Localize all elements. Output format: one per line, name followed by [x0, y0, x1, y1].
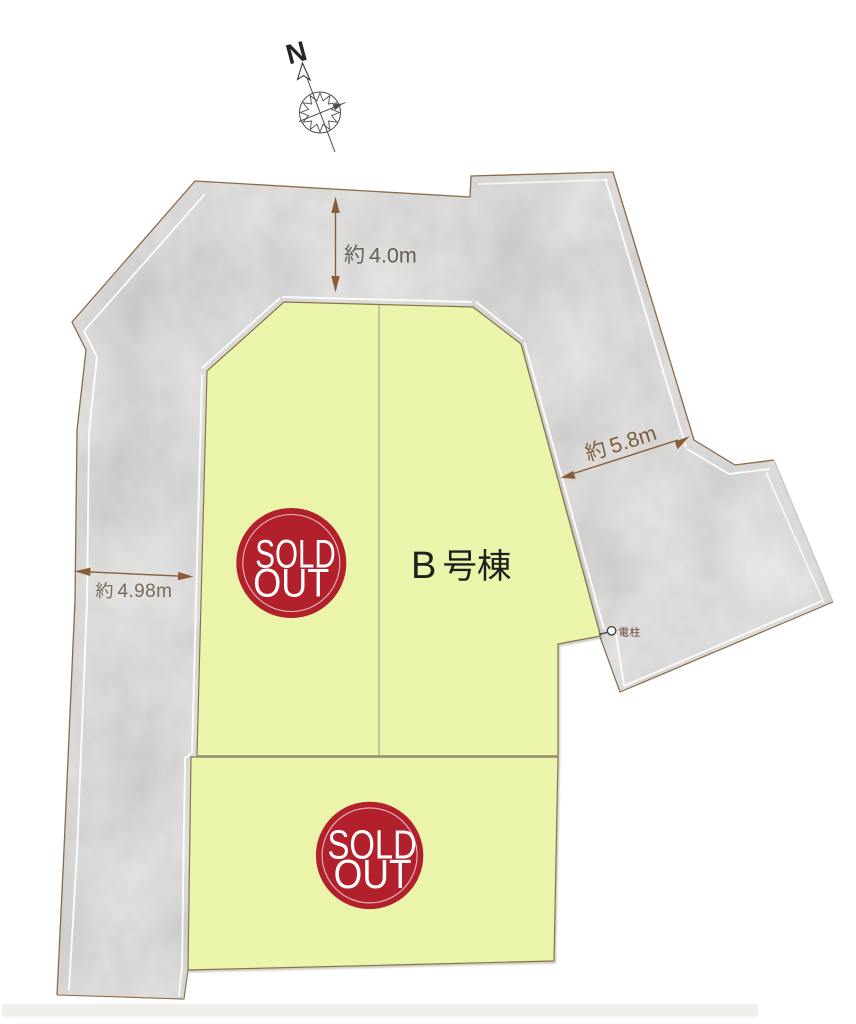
- svg-text:OUT: OUT: [334, 852, 412, 897]
- svg-text:B: B: [411, 545, 436, 587]
- svg-text:4.0m: 4.0m: [369, 244, 417, 268]
- svg-text:4.98m: 4.98m: [118, 581, 173, 602]
- svg-text:OUT: OUT: [253, 562, 329, 606]
